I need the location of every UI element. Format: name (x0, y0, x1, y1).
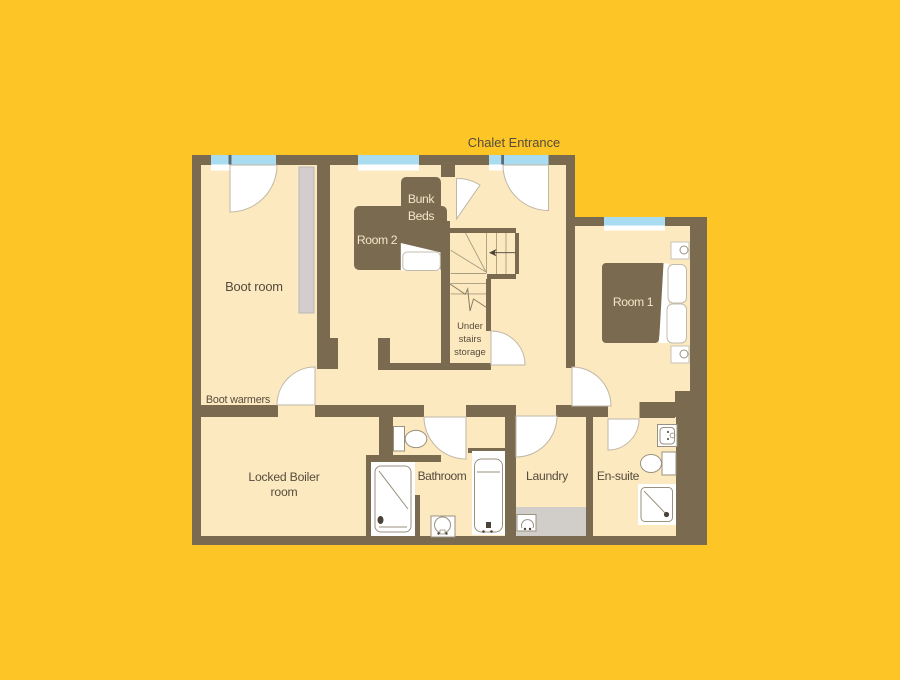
svg-text:storage: storage (454, 347, 486, 358)
svg-text:Bathroom: Bathroom (418, 469, 467, 483)
svg-text:En-suite: En-suite (597, 469, 640, 483)
svg-text:Bunk: Bunk (408, 192, 435, 206)
svg-text:room: room (271, 485, 298, 499)
svg-text:Boot room: Boot room (225, 279, 283, 294)
svg-text:Laundry: Laundry (526, 469, 569, 483)
svg-text:Under: Under (457, 321, 483, 332)
svg-text:Chalet Entrance: Chalet Entrance (468, 135, 560, 150)
svg-text:Room 1: Room 1 (613, 295, 654, 309)
svg-text:stairs: stairs (459, 334, 482, 345)
svg-text:Beds: Beds (408, 209, 434, 223)
svg-text:Boot warmers: Boot warmers (206, 394, 271, 406)
svg-text:Room 2: Room 2 (357, 233, 398, 247)
svg-text:Locked Boiler: Locked Boiler (248, 470, 319, 484)
